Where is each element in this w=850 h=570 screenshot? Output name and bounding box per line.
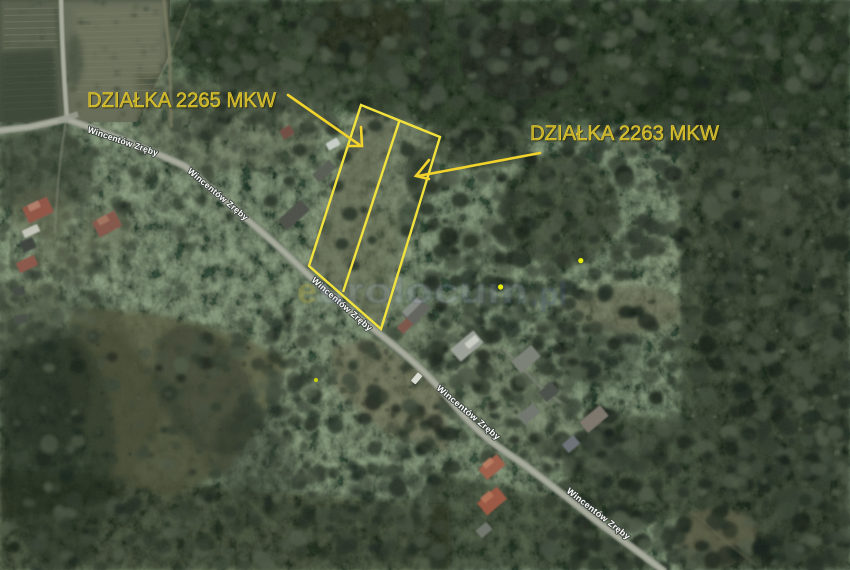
- svg-text:DZIAŁKA 2265 MKW: DZIAŁKA 2265 MKW: [87, 88, 277, 112]
- svg-text:.pl: .pl: [530, 276, 567, 312]
- svg-text:urolocum: urolocum: [318, 270, 528, 311]
- svg-text:e: e: [297, 270, 317, 311]
- svg-text:DZIAŁKA 2263 MKW: DZIAŁKA 2263 MKW: [530, 121, 720, 145]
